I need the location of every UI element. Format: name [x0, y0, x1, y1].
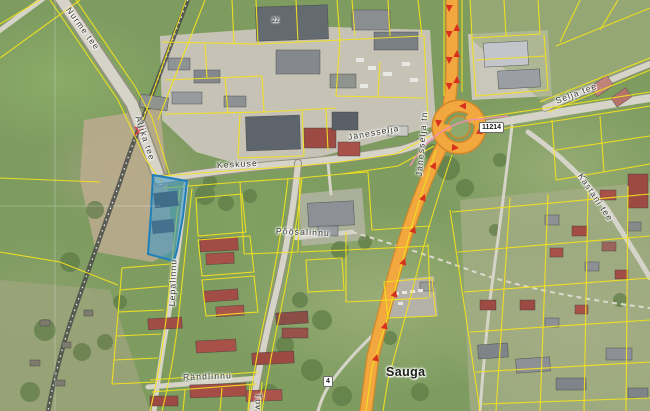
- road-number-badge-11214: 11214: [479, 122, 504, 133]
- street-label-poosalinnu: Põõsalinnu: [276, 227, 330, 237]
- map-canvas[interactable]: Nurme tee Allika tee Keskuse Jänesselja …: [0, 0, 650, 411]
- street-label-keskuse: Keskuse: [217, 159, 258, 170]
- road-number-badge-4: 4: [323, 376, 333, 387]
- street-label-randlinnu: Rändlinnu: [183, 371, 232, 381]
- highlighted-cadastral-parcel[interactable]: [148, 175, 187, 261]
- house-number-label: 22: [272, 18, 279, 24]
- place-label-sauga: Sauga: [386, 366, 426, 379]
- street-label-tuvi: Tuvi: [254, 393, 263, 411]
- street-label-lepalinnu: Lepalinnu: [168, 258, 178, 306]
- map-vector-layer: [0, 0, 650, 411]
